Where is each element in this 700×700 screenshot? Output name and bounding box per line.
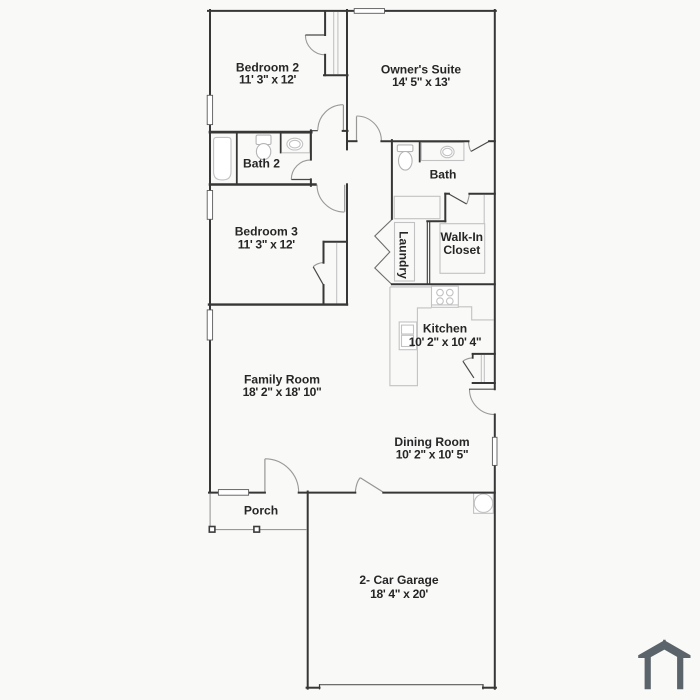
svg-text:Bedroom 3: Bedroom 3	[235, 225, 298, 239]
svg-text:Porch: Porch	[244, 504, 278, 518]
svg-text:Bath: Bath	[430, 167, 457, 181]
svg-text:Walk-In: Walk-In	[441, 230, 484, 244]
svg-text:2- Car Garage: 2- Car Garage	[359, 573, 439, 587]
svg-text:18' 4" x 20': 18' 4" x 20'	[370, 587, 428, 601]
svg-text:11' 3" x 12': 11' 3" x 12'	[238, 237, 296, 251]
svg-text:Closet: Closet	[443, 243, 480, 257]
svg-text:Bath 2: Bath 2	[243, 157, 280, 171]
svg-text:11' 3" x 12': 11' 3" x 12'	[239, 73, 297, 87]
svg-text:18' 2" x 18' 10": 18' 2" x 18' 10"	[243, 385, 322, 399]
svg-text:Laundry: Laundry	[397, 231, 411, 279]
svg-text:10' 2" x 10' 5": 10' 2" x 10' 5"	[396, 448, 469, 462]
svg-text:10' 2" x 10' 4": 10' 2" x 10' 4"	[409, 335, 482, 349]
svg-text:14' 5" x 13': 14' 5" x 13'	[392, 75, 450, 89]
svg-text:Kitchen: Kitchen	[423, 322, 467, 336]
